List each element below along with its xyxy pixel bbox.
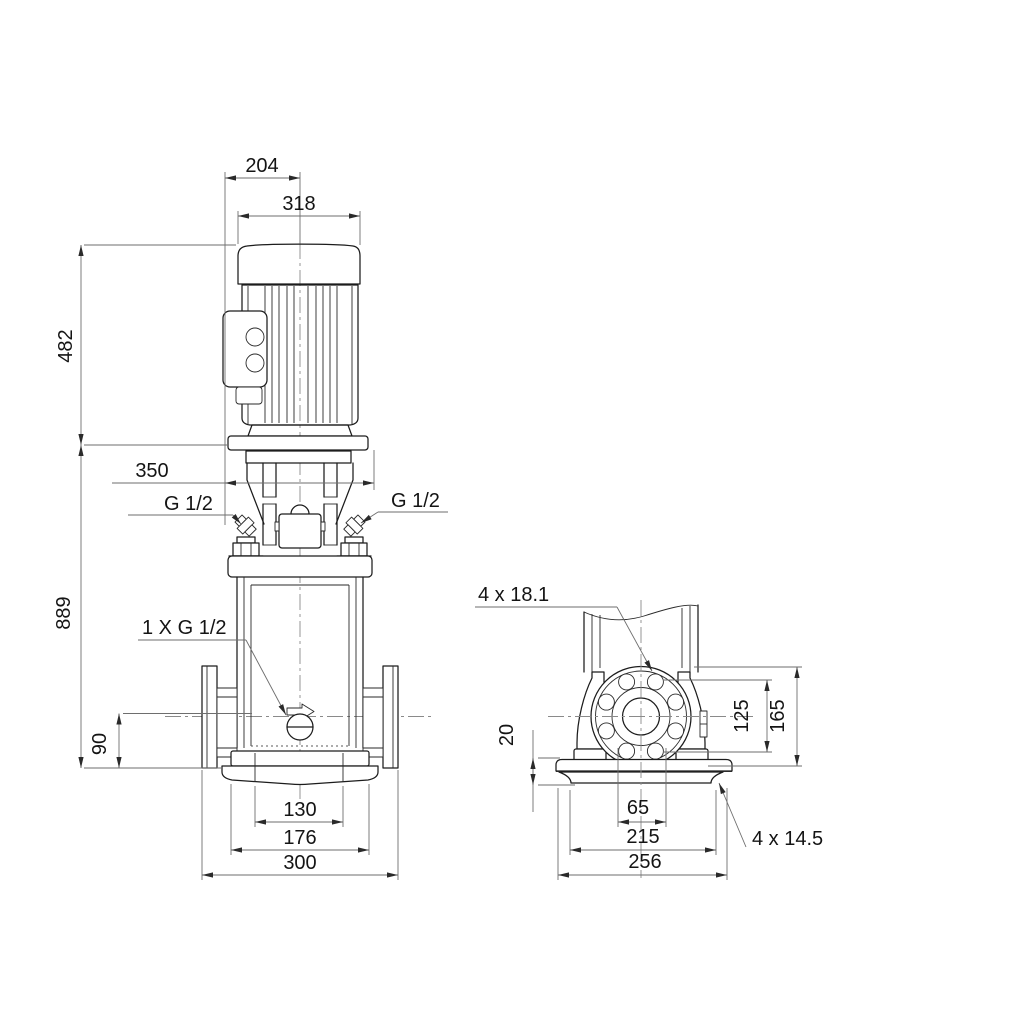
dim-130: 130 xyxy=(283,799,316,821)
dim-215: 215 xyxy=(626,826,659,848)
dim-204: 204 xyxy=(245,155,278,177)
dim-300: 300 xyxy=(283,852,316,874)
dim-176: 176 xyxy=(283,827,316,849)
label-drain-port: 1 X G 1/2 xyxy=(142,617,227,639)
label-port-right: G 1/2 xyxy=(391,490,440,512)
staybolt-nut-right xyxy=(337,537,371,556)
vent-plug-left xyxy=(233,513,258,538)
fan-cover xyxy=(238,244,360,284)
dim-90: 90 xyxy=(89,733,111,755)
shaft-dome xyxy=(291,505,309,514)
label-port-left: G 1/2 xyxy=(164,493,213,515)
label-flange-holes: 4 x 18.1 xyxy=(478,584,549,606)
motor xyxy=(223,244,368,463)
vent-plug-right xyxy=(342,513,367,538)
dim-125: 125 xyxy=(731,699,753,732)
dim-165: 165 xyxy=(767,699,789,732)
drawing-svg: 204 318 482 350 889 90 130 xyxy=(0,0,1024,1024)
cable-entry-top xyxy=(246,328,264,346)
motor-fins xyxy=(265,286,337,423)
base-side xyxy=(556,760,732,784)
dim-20: 20 xyxy=(496,724,518,746)
dim-318: 318 xyxy=(282,193,315,215)
coupling xyxy=(279,514,321,548)
coupling-guard-right xyxy=(324,463,337,545)
base-plate-side xyxy=(556,760,732,772)
dim-889: 889 xyxy=(53,596,75,629)
drain-plug xyxy=(287,704,314,740)
motor-flange-plate xyxy=(228,436,368,450)
base-plate xyxy=(222,766,378,785)
terminal-box xyxy=(223,311,267,404)
cable-entry-bottom xyxy=(246,354,264,372)
motor-flange-plate2 xyxy=(246,451,351,463)
dim-65: 65 xyxy=(627,797,649,819)
base-front xyxy=(222,751,378,785)
dim-350: 350 xyxy=(135,460,168,482)
coupling-guard-left xyxy=(263,463,276,545)
front-view: 204 318 482 350 889 90 130 xyxy=(53,155,448,880)
dim-256: 256 xyxy=(628,851,661,873)
staybolt-nut-left xyxy=(229,537,263,556)
dim-482: 482 xyxy=(55,329,77,362)
label-base-holes: 4 x 14.5 xyxy=(752,828,823,850)
pump-head-flange xyxy=(228,556,372,577)
pump-dimensional-drawing: 204 318 482 350 889 90 130 xyxy=(0,0,1024,1024)
side-view: 4 x 18.1 20 125 165 65 215 xyxy=(475,584,823,880)
